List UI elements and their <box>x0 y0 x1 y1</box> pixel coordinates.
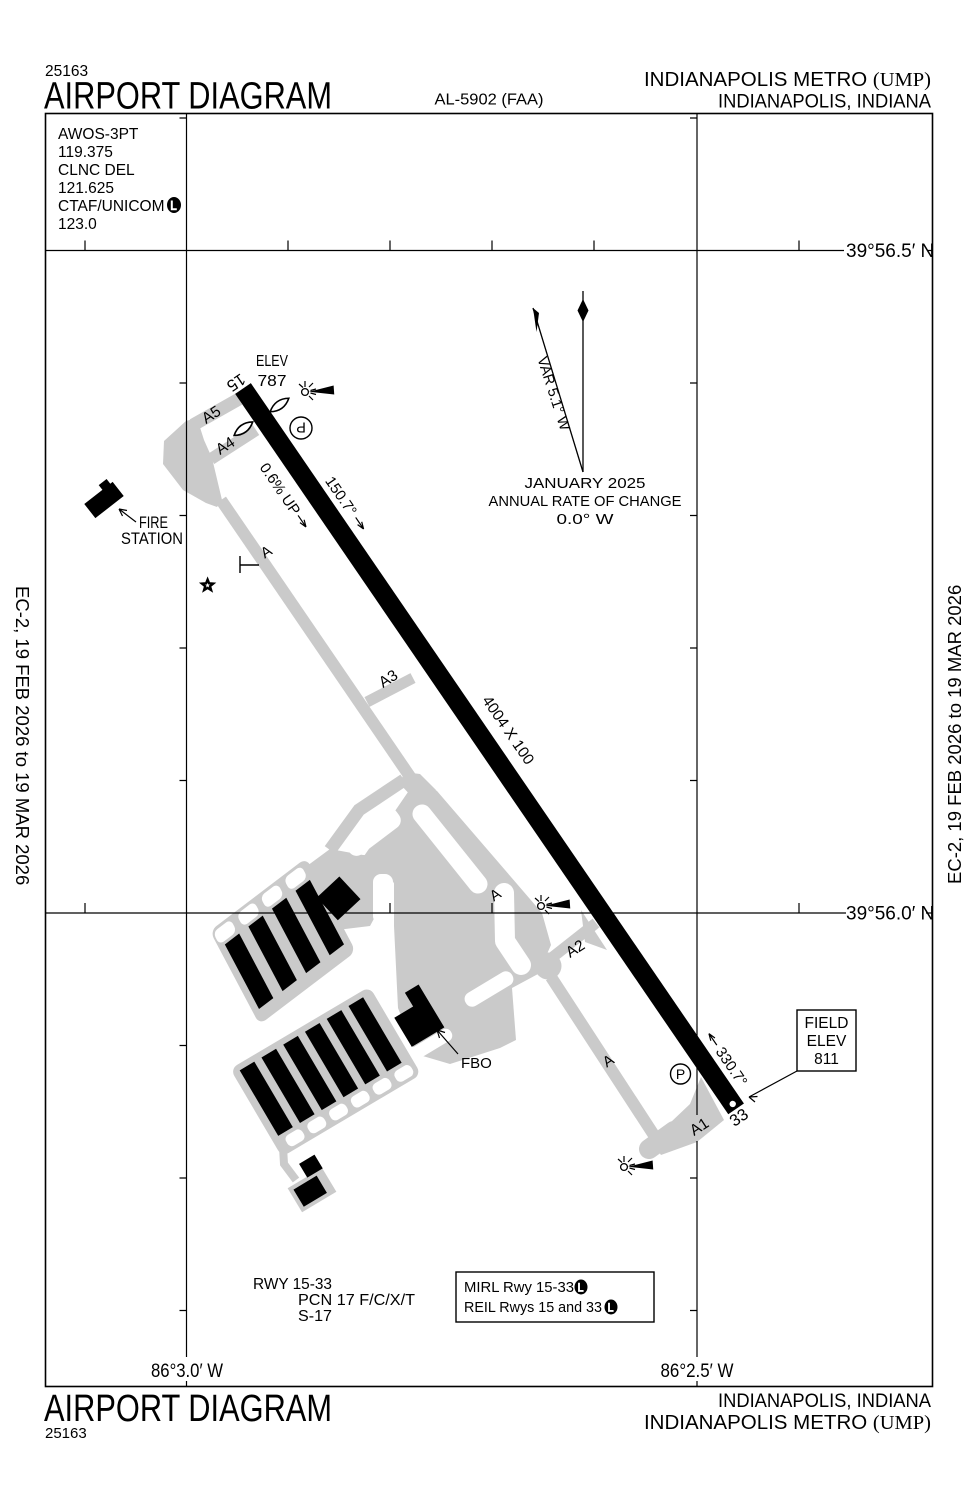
svg-text:INDIANAPOLIS, INDIANA: INDIANAPOLIS, INDIANA <box>718 1390 931 1412</box>
svg-text:STATION: STATION <box>121 530 183 548</box>
svg-text:AIRPORT DIAGRAM: AIRPORT DIAGRAM <box>44 1388 332 1430</box>
svg-text:EC-2, 19 FEB 2026 to 19 MAR: EC-2, 19 FEB 2026 to 19 MAR 2026 <box>944 585 965 884</box>
svg-text:EC-2, 19 FEB 2026 to 19 MAR: EC-2, 19 FEB 2026 to 19 MAR 2026 <box>12 586 33 885</box>
svg-text:AWOS-3PT: AWOS-3PT <box>58 126 139 143</box>
svg-text:811: 811 <box>814 1051 839 1068</box>
svg-text:REIL Rwys 15 and 33: REIL Rwys 15 and 33 <box>464 1300 602 1316</box>
svg-text:JANUARY 2025: JANUARY 2025 <box>525 476 646 492</box>
svg-text:CLNC DEL: CLNC DEL <box>58 162 135 179</box>
svg-text:ELEV: ELEV <box>256 353 288 370</box>
svg-text:86°3.0′ W: 86°3.0′ W <box>151 1361 223 1382</box>
svg-text:39°56.0′ N: 39°56.0′ N <box>846 904 934 925</box>
svg-text:ANNUAL RATE OF CHANGE: ANNUAL RATE OF CHANGE <box>489 494 682 510</box>
svg-text:123.0: 123.0 <box>58 216 97 233</box>
svg-text:FBO: FBO <box>461 1055 492 1072</box>
svg-text:ELEV: ELEV <box>807 1033 847 1050</box>
svg-text:RWY 15-33: RWY 15-33 <box>253 1276 332 1293</box>
svg-text:S-17: S-17 <box>298 1308 332 1325</box>
svg-text:INDIANAPOLIS, INDIANA: INDIANAPOLIS, INDIANA <box>718 91 931 113</box>
svg-text:CTAF/UNICOM: CTAF/UNICOM <box>58 198 164 215</box>
svg-text:INDIANAPOLIS METRO (UMP): INDIANAPOLIS METRO (UMP) <box>644 68 931 91</box>
svg-text:P: P <box>296 419 306 435</box>
svg-text:0.0° W: 0.0° W <box>557 512 614 528</box>
svg-text:INDIANAPOLIS METRO (UMP): INDIANAPOLIS METRO (UMP) <box>644 1411 931 1434</box>
svg-text:PCN 17 F/C/X/T: PCN 17 F/C/X/T <box>298 1292 416 1309</box>
svg-text:P: P <box>676 1066 685 1082</box>
svg-text:AIRPORT DIAGRAM: AIRPORT DIAGRAM <box>44 76 332 118</box>
svg-text:86°2.5′ W: 86°2.5′ W <box>661 1361 734 1382</box>
svg-text:MIRL Rwy 15-33: MIRL Rwy 15-33 <box>464 1280 574 1296</box>
svg-text:787: 787 <box>258 373 287 390</box>
svg-text:FIELD: FIELD <box>805 1015 849 1032</box>
svg-text:39°56.5′ N: 39°56.5′ N <box>846 241 934 262</box>
svg-text:25163: 25163 <box>45 1425 87 1442</box>
svg-text:119.375: 119.375 <box>58 144 113 161</box>
svg-text:AL-5902 (FAA): AL-5902 (FAA) <box>435 92 544 109</box>
svg-text:121.625: 121.625 <box>58 180 114 197</box>
